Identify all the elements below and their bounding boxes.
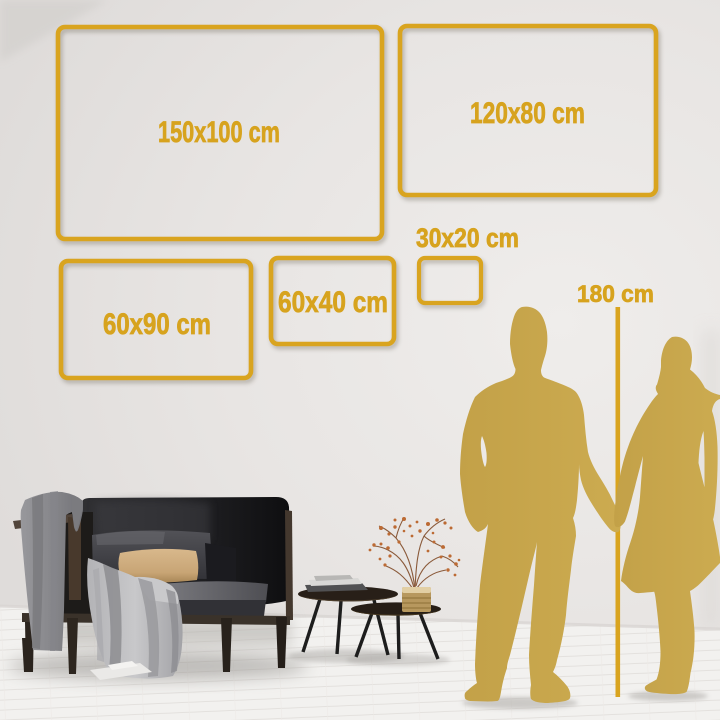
svg-text:180 cm: 180 cm — [577, 281, 654, 308]
svg-text:60x90 cm: 60x90 cm — [103, 308, 211, 341]
svg-text:120x80 cm: 120x80 cm — [470, 97, 585, 130]
svg-text:30x20 cm: 30x20 cm — [416, 223, 519, 253]
svg-text:150x100 cm: 150x100 cm — [158, 116, 280, 149]
svg-text:60x40 cm: 60x40 cm — [278, 286, 388, 319]
